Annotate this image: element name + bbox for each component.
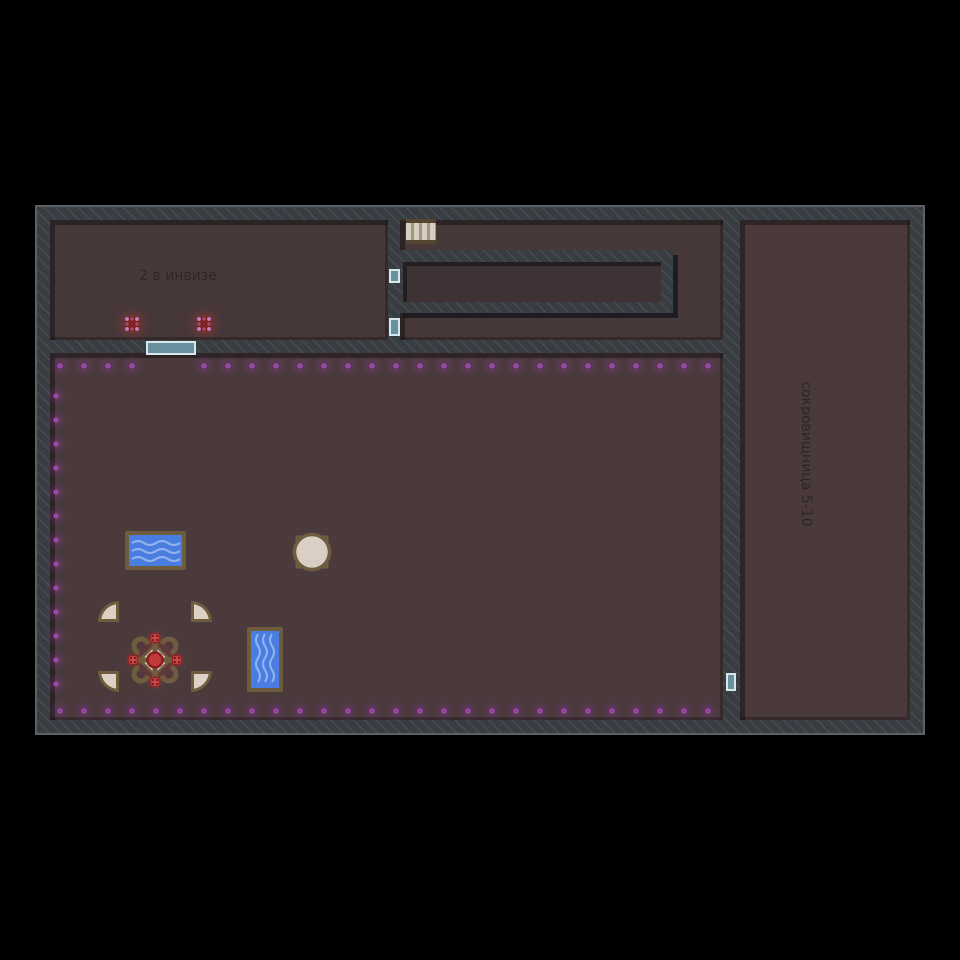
treasury-room-label: сокровищница 5-10 (798, 381, 814, 526)
purple-rune-dot (298, 364, 303, 369)
purple-rune-dot (54, 442, 59, 447)
purple-rune-dot (54, 514, 59, 519)
purple-rune-dot (610, 709, 615, 714)
door-main-room-south[interactable] (146, 341, 196, 355)
purple-rune-dot (58, 709, 63, 714)
purple-rune-dot (54, 682, 59, 687)
dungeon-map-canvas[interactable]: 2 в инвизе сокровищница 5-10 (0, 0, 960, 960)
purple-rune-dot (394, 709, 399, 714)
purple-rune-dot (442, 709, 447, 714)
purple-rune-dot (346, 364, 351, 369)
purple-rune-dot (346, 709, 351, 714)
purple-rune-dot (54, 490, 59, 495)
purple-rune-dot (54, 562, 59, 567)
purple-rune-dot (370, 364, 375, 369)
purple-rune-dot (490, 364, 495, 369)
purple-rune-dot (82, 364, 87, 369)
purple-rune-dot (54, 418, 59, 423)
purple-rune-dot (610, 364, 615, 369)
stairs-icon[interactable] (406, 219, 436, 244)
purple-rune-dot (514, 364, 519, 369)
purple-rune-dot (370, 709, 375, 714)
round-table-icon[interactable] (290, 530, 334, 574)
purple-rune-dot (538, 709, 543, 714)
purple-rune-dot (562, 364, 567, 369)
room-invis-floor (50, 220, 388, 340)
purple-rune-dot (586, 709, 591, 714)
purple-rune-dot (58, 364, 63, 369)
purple-rune-dot (54, 394, 59, 399)
purple-rune-dot (202, 364, 207, 369)
purple-rune-dot (298, 709, 303, 714)
purple-rune-dot (54, 610, 59, 615)
purple-rune-dot (130, 709, 135, 714)
purple-rune-dot (682, 364, 687, 369)
purple-rune-dot (106, 364, 111, 369)
water-pool-vertical-icon[interactable] (247, 627, 283, 692)
purple-rune-dot (682, 709, 687, 714)
purple-rune-dot (82, 709, 87, 714)
invis-room-label: 2 в инвизе (139, 268, 217, 284)
purple-rune-dot (634, 709, 639, 714)
purple-rune-dot (54, 466, 59, 471)
purple-rune-dot (202, 709, 207, 714)
purple-rune-dot (658, 364, 663, 369)
purple-rune-dot (54, 634, 59, 639)
purple-rune-dot (130, 364, 135, 369)
purple-rune-dot (274, 709, 279, 714)
water-pool-horizontal-icon[interactable] (125, 531, 186, 570)
door-middle-room-west[interactable] (389, 318, 400, 336)
purple-rune-dot (586, 364, 591, 369)
purple-rune-dot (54, 658, 59, 663)
purple-rune-dot (322, 709, 327, 714)
purple-rune-dot (226, 709, 231, 714)
purple-rune-dot (394, 364, 399, 369)
purple-rune-dot (634, 364, 639, 369)
central-ornament-icon[interactable] (123, 628, 187, 692)
purple-rune-dot (658, 709, 663, 714)
purple-rune-dot (154, 709, 159, 714)
purple-rune-dot (54, 538, 59, 543)
room-treasury-floor (740, 220, 910, 720)
purple-rune-dot (178, 709, 183, 714)
door-treasury-west[interactable] (726, 673, 736, 691)
purple-rune-dot (562, 709, 567, 714)
purple-rune-dot (442, 364, 447, 369)
purple-rune-dot (538, 364, 543, 369)
purple-rune-dot (490, 709, 495, 714)
purple-rune-dot (418, 709, 423, 714)
purple-rune-dot (250, 364, 255, 369)
purple-rune-dot (106, 709, 111, 714)
purple-rune-dot (466, 364, 471, 369)
purple-rune-dot (706, 709, 711, 714)
purple-rune-dot (706, 364, 711, 369)
purple-rune-dot (54, 586, 59, 591)
purple-rune-dot (514, 709, 519, 714)
purple-rune-dot (250, 709, 255, 714)
purple-rune-dot (226, 364, 231, 369)
door-chamber-west[interactable] (389, 269, 400, 283)
purple-rune-dot (466, 709, 471, 714)
purple-rune-dot (418, 364, 423, 369)
purple-rune-dot (274, 364, 279, 369)
purple-rune-dot (322, 364, 327, 369)
invisible-unit-marker[interactable] (197, 317, 211, 331)
inner-chamber-floor (403, 262, 661, 302)
invisible-unit-marker[interactable] (125, 317, 139, 331)
